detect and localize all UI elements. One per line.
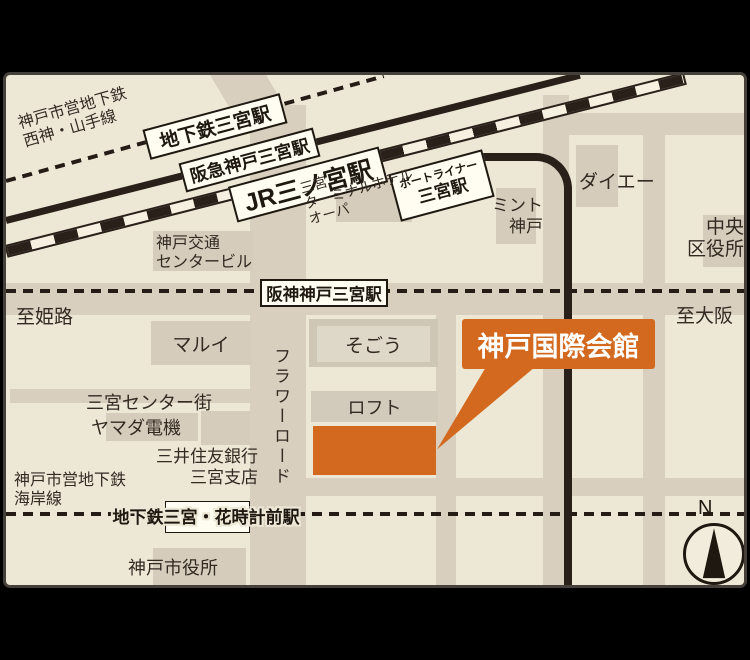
- label-to-osaka: 至大阪: [676, 301, 733, 328]
- kobe-international-house-building: [313, 426, 436, 475]
- compass-north-label: N: [698, 497, 712, 520]
- label-subway-seishin-yamate: 神戸市営地下鉄 西神・山手線: [16, 84, 134, 151]
- smbc-bank-block: [201, 411, 250, 445]
- label-loft: ロフト: [311, 391, 438, 422]
- road-east-of-sogo: [436, 315, 456, 588]
- label-kotsu-center-building: 神戸交通 センタービル: [156, 234, 252, 272]
- label-chuo-ward-office: 中央 区役所: [672, 217, 744, 261]
- compass-icon: [683, 523, 745, 585]
- callout-kobe-international-house: 神戸国際会館: [462, 319, 655, 369]
- label-mint-kobe: ミント 神戸: [486, 195, 543, 237]
- label-sogo: そごう: [317, 326, 430, 362]
- callout-label: 神戸国際会館: [478, 325, 640, 364]
- station-label: 阪神神戸三宮駅: [266, 281, 382, 305]
- label-yamada-denki: ヤマダ電機: [91, 414, 181, 440]
- label-marui: マルイ: [151, 321, 251, 365]
- label-kobe-city-hall: 神戸市役所: [128, 554, 218, 580]
- label-center-gai: 三宮センター街: [86, 389, 212, 415]
- station-box-hanshin-kobe-sannomiya: 阪神神戸三宮駅: [260, 279, 388, 307]
- kobe-access-map: 地下鉄三宮駅 阪急神戸三宮駅 JR三ノ宮駅 ポートライナー 三宮駅 阪神神戸三宮…: [3, 72, 747, 588]
- label-subway-kaigan: 神戸市営地下鉄 海岸線: [14, 471, 126, 509]
- label-daiei: ダイエー: [579, 167, 655, 194]
- compass-needle-icon: [686, 526, 742, 582]
- page-background: { "colors": { "highlight_orange": "#d269…: [0, 0, 750, 660]
- label-flower-road: フラワーロード: [268, 347, 293, 577]
- label-smbc-bank: 三井住友銀行 三宮支店: [138, 446, 258, 488]
- label-to-himeji: 至姫路: [16, 302, 73, 329]
